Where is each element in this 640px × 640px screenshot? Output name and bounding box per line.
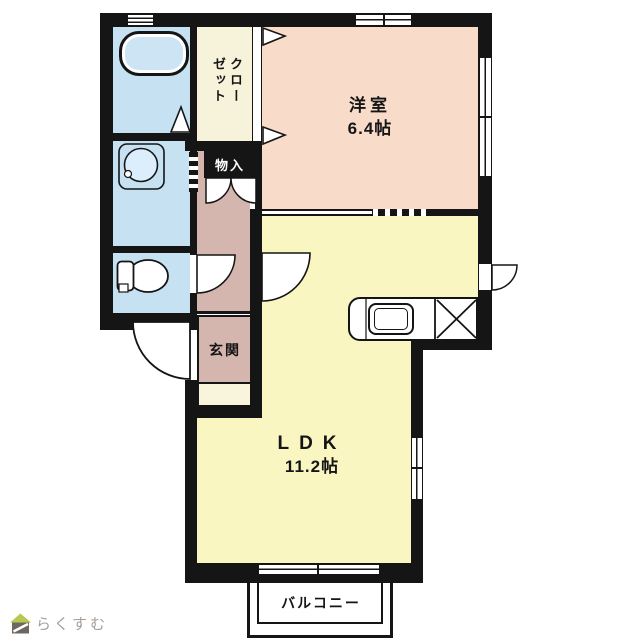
storage-door-arc-left (206, 178, 231, 203)
entrance-label: 玄関 (197, 340, 253, 360)
ldk-label: LDK 11.2帖 (232, 432, 392, 478)
ldk-size: 11.2帖 (232, 455, 392, 478)
western-room-label: 洋室 6.4帖 (262, 94, 478, 140)
closet-label: クローゼット (206, 57, 244, 109)
floor-plan: 物入 クローゼット (0, 0, 640, 640)
ldk-door-arc (262, 253, 310, 301)
western-room-name: 洋室 (262, 94, 478, 117)
entrance-door-arc (133, 322, 190, 379)
closet-door-triangle-top (263, 28, 285, 45)
logo: らくすむ (10, 613, 108, 634)
western-room-size: 6.4帖 (262, 117, 478, 140)
ldk-name: LDK (232, 432, 392, 455)
logo-text: らくすむ (36, 613, 108, 634)
balcony-label: バルコニー (258, 593, 384, 613)
storage-door-arc-right (231, 178, 256, 203)
bath-door-triangle (171, 107, 190, 132)
toilet-base (119, 284, 128, 292)
washbasin-faucet (125, 171, 132, 178)
kitchen-exterior-door-arc (492, 265, 517, 290)
house-icon (10, 613, 31, 634)
toilet-door-arc (197, 255, 235, 293)
